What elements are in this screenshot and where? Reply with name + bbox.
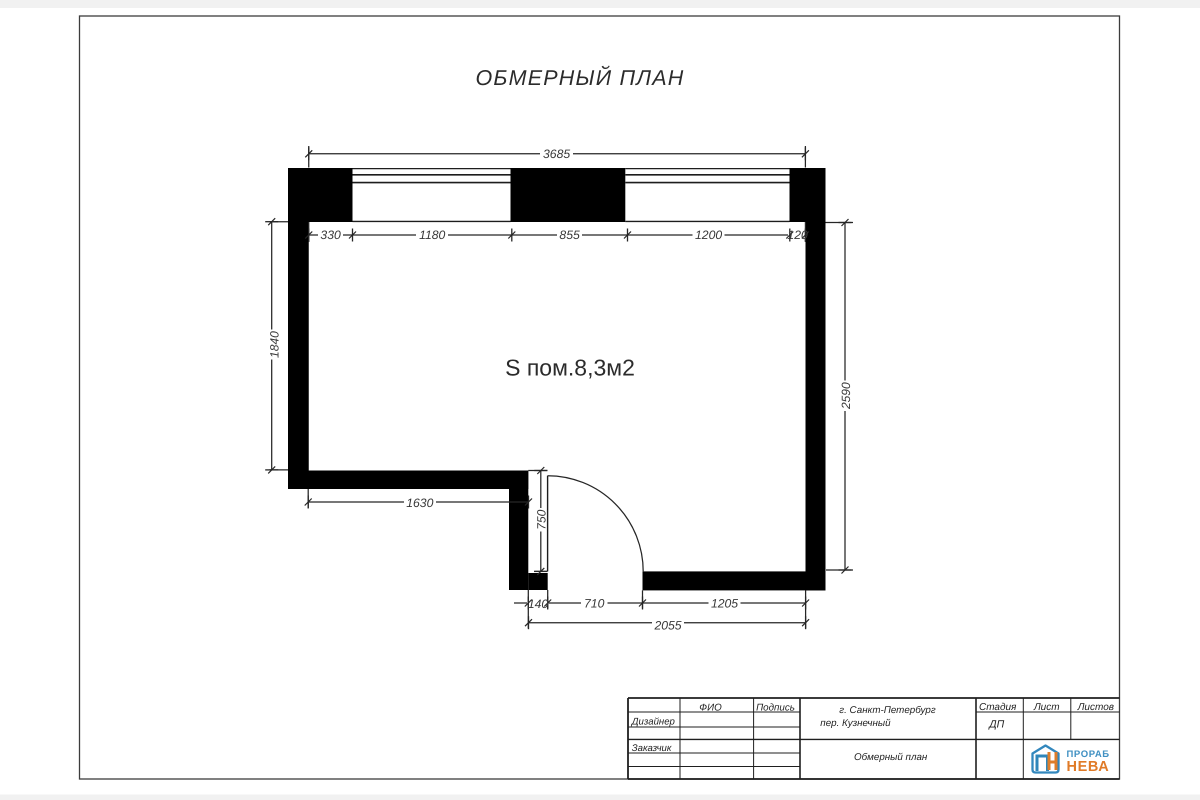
svg-text:ФИО: ФИО [699,702,722,713]
svg-text:1630: 1630 [406,496,433,510]
svg-text:S пом.8,3м2: S пом.8,3м2 [505,354,635,380]
svg-text:ДП: ДП [988,719,1004,731]
svg-text:Дизайнер: Дизайнер [631,717,676,728]
svg-text:г. Санкт-Петербург: г. Санкт-Петербург [839,705,936,716]
svg-text:ОБМЕРНЫЙ ПЛАН: ОБМЕРНЫЙ ПЛАН [475,65,684,90]
svg-text:пер. Кузнечный: пер. Кузнечный [820,718,891,729]
svg-text:2590: 2590 [839,382,853,410]
svg-text:Подпись: Подпись [756,702,795,713]
svg-text:120: 120 [787,228,808,242]
svg-text:1840: 1840 [267,331,281,358]
svg-text:710: 710 [584,597,605,611]
svg-text:Листов: Листов [1077,702,1114,713]
svg-text:2055: 2055 [653,619,681,633]
svg-text:330: 330 [320,228,341,242]
svg-text:1200: 1200 [695,228,722,242]
svg-text:Заказчик: Заказчик [632,743,672,754]
svg-text:1180: 1180 [419,228,445,242]
svg-text:Лист: Лист [1033,702,1060,713]
svg-text:Стадия: Стадия [979,702,1017,713]
svg-text:НЕВА: НЕВА [1067,759,1110,775]
svg-text:1205: 1205 [711,597,738,611]
svg-text:855: 855 [559,228,580,242]
svg-text:140: 140 [528,597,549,611]
svg-text:750: 750 [534,509,548,529]
svg-text:3685: 3685 [543,147,570,161]
svg-text:Обмерный план: Обмерный план [854,752,928,763]
